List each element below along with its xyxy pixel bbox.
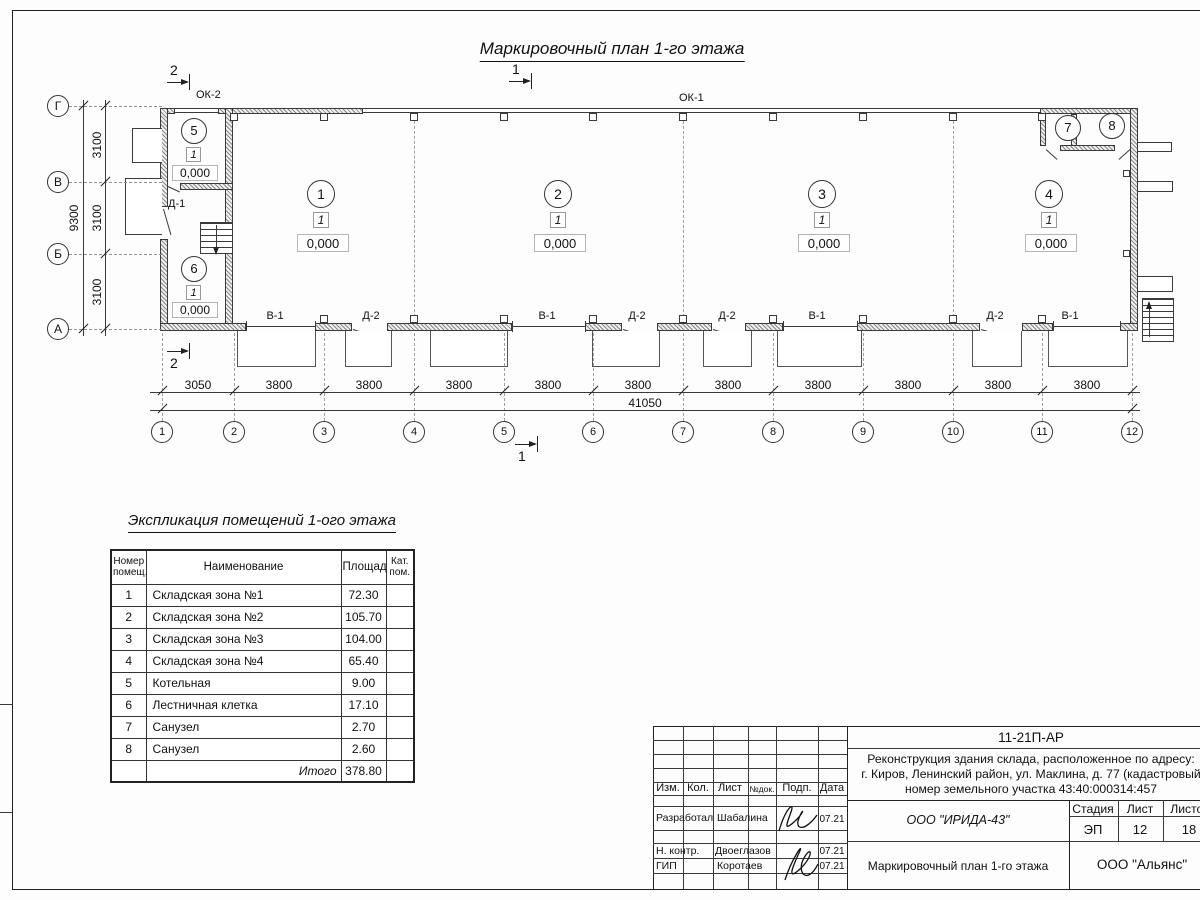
room-category-box: 1 [313, 212, 329, 228]
drawing-sheet: { "page": { "title": "Маркировочный план… [0, 0, 1200, 900]
room-number-bubble: 3 [808, 180, 836, 208]
canopy-right [1138, 181, 1173, 192]
zone-divider [414, 116, 415, 322]
titleblock-line [1069, 816, 1200, 817]
frame-mark [0, 812, 12, 813]
tb-header: Подп. [782, 783, 811, 794]
axis-extension [504, 333, 505, 421]
cell-num: 8 [111, 738, 146, 760]
pilaster [500, 315, 508, 323]
titleblock-line [713, 726, 714, 889]
opening-label: Д-2 [628, 311, 645, 322]
section-mark-bar [537, 436, 538, 452]
axis-extension [414, 333, 415, 421]
dim-label: 3100 [91, 132, 103, 159]
axis-bubble: Г [47, 95, 69, 117]
pilaster [1123, 250, 1130, 257]
room-elevation: 0,000 [798, 234, 850, 252]
dim-label: 3800 [805, 379, 832, 391]
signature [779, 836, 821, 884]
wall [160, 239, 168, 331]
pilaster [859, 113, 867, 121]
room-number-bubble: 2 [544, 180, 572, 208]
wall [180, 183, 233, 190]
door-leaf [1119, 149, 1131, 160]
axis-bubble: 11 [1031, 421, 1053, 443]
pilaster [230, 113, 238, 121]
porch [777, 331, 862, 367]
window-b1 [1053, 326, 1120, 327]
tb-company: ООО "Альянс" [1097, 858, 1187, 872]
titleblock-line [847, 841, 1200, 842]
axis-bubble: 4 [403, 421, 425, 443]
table-header-row: Номер помещ. Наименование Площадь Кат. п… [111, 550, 414, 584]
titleblock-line [653, 782, 847, 783]
table-row: 5Котельная9.00 [111, 672, 414, 694]
axis-bubble: 12 [1121, 421, 1143, 443]
zone-divider [683, 116, 684, 322]
dimension-line [150, 410, 1140, 411]
section-arrow-icon [523, 78, 531, 84]
axis-bubble: 9 [852, 421, 874, 443]
wall [745, 323, 783, 331]
tb-sheets-label: Листов [1170, 803, 1200, 815]
cell-area: 9.00 [341, 672, 386, 694]
dim-label: 3800 [446, 379, 473, 391]
table-total-row: Итого378.80 [111, 760, 414, 782]
tb-sheet-label: Лист [1127, 803, 1153, 815]
porch [703, 331, 752, 367]
dimension-line [105, 100, 106, 336]
dimension-line [83, 100, 84, 336]
window-ok1 [363, 108, 1040, 113]
pilaster [320, 113, 328, 121]
cell-cat [386, 716, 414, 738]
tb-org: ООО "ИРИДА-43" [907, 814, 1010, 827]
room-elevation: 0,000 [1025, 234, 1077, 252]
axis-bubble: 5 [493, 421, 515, 443]
room-category-box: 1 [550, 212, 566, 228]
dim-label: 3800 [266, 379, 293, 391]
section-arrow-icon [181, 348, 189, 354]
cell-cat [386, 584, 414, 606]
axis-bubble: 1 [151, 421, 173, 443]
titleblock-line [653, 795, 847, 796]
pilaster [1123, 170, 1130, 177]
porch-left [132, 128, 162, 163]
porch [972, 331, 1022, 367]
axis-extension [773, 333, 774, 421]
tb-role: Н. контр. [656, 846, 699, 857]
stair-arrow-up-icon [1146, 301, 1152, 309]
opening-label: Д-2 [362, 311, 379, 322]
cell-area: 104.00 [341, 628, 386, 650]
col-header-name: Наименование [146, 550, 341, 584]
tb-header: №док. [750, 785, 775, 794]
dim-total-label: 9300 [68, 205, 80, 232]
wall [1060, 145, 1115, 151]
tb-name: Двоеглазов [715, 846, 771, 857]
cell-name: Лестничная клетка [146, 694, 341, 716]
opening-label: В-1 [808, 311, 825, 322]
wall [1130, 108, 1138, 331]
cell-area: 65.40 [341, 650, 386, 672]
cell-num: 1 [111, 584, 146, 606]
cell-cat [386, 606, 414, 628]
tb-role: ГИП [656, 861, 677, 872]
door-leaf-d1 [163, 209, 171, 235]
axis-bubble: 2 [223, 421, 245, 443]
pilaster [679, 113, 687, 121]
cell-num: 5 [111, 672, 146, 694]
cell-name: Складская зона №1 [146, 584, 341, 606]
col-header-area: Площадь [341, 550, 386, 584]
cell-cat [386, 760, 414, 782]
room-elevation: 0,000 [534, 234, 586, 252]
col-header-num: Номер помещ. [111, 550, 146, 584]
pilaster [769, 315, 777, 323]
wall [1022, 323, 1053, 331]
tb-name: Коротаев [717, 861, 762, 872]
titleblock-border [653, 726, 654, 889]
door-leaf [1046, 149, 1058, 160]
tb-date: 07.21 [819, 847, 844, 857]
section-arrow-icon [529, 441, 537, 447]
pilaster [500, 113, 508, 121]
cell-name: Складская зона №4 [146, 650, 341, 672]
cell-num [111, 760, 146, 782]
room-number-bubble: 6 [181, 256, 207, 282]
tb-stage-value: ЭП [1084, 823, 1103, 836]
stair-arrow-down-icon [213, 247, 219, 255]
dim-label: 3800 [895, 379, 922, 391]
dim-label: 3800 [985, 379, 1012, 391]
cell-num: 2 [111, 606, 146, 628]
pilaster [410, 113, 418, 121]
wall [315, 323, 352, 331]
axis-extension [324, 333, 325, 421]
cell-num: 4 [111, 650, 146, 672]
frame-left [12, 10, 13, 889]
pilaster [589, 315, 597, 323]
cell-cat [386, 672, 414, 694]
cell-cat [386, 738, 414, 760]
axis-bubble: А [47, 318, 69, 340]
opening-label: Д-2 [718, 311, 735, 322]
axis-extension [683, 333, 684, 421]
canopy-right [1138, 142, 1172, 152]
wall [657, 323, 712, 331]
axis-extension [863, 333, 864, 421]
frame-bottom [12, 889, 1200, 890]
opening-label: В-1 [1061, 311, 1078, 322]
opening-label: В-1 [538, 311, 555, 322]
pilaster [589, 113, 597, 121]
dim-label: 3800 [625, 379, 652, 391]
frame-top [12, 10, 1200, 11]
page-title: Маркировочный план 1-го этажа [480, 39, 745, 62]
tb-project-line: Реконструкция здания склада, расположенн… [867, 753, 1194, 765]
axis-bubble: В [47, 171, 69, 193]
cell-name: Санузел [146, 738, 341, 760]
tb-date: 07.21 [819, 815, 844, 825]
porch [345, 331, 392, 367]
window-label-ok1: ОК-1 [679, 93, 704, 104]
tb-header: Дата [820, 783, 844, 794]
explication-table: Номер помещ. Наименование Площадь Кат. п… [110, 549, 415, 783]
dim-label: 3800 [535, 379, 562, 391]
table-row: 1Складская зона №172.30 [111, 584, 414, 606]
axis-bubble: Б [47, 243, 69, 265]
tb-date: 07.21 [819, 862, 844, 872]
axis-extension [1042, 333, 1043, 421]
room-number-bubble: 7 [1055, 115, 1081, 141]
section-mark-bar [189, 343, 190, 359]
titleblock-line [847, 748, 1200, 749]
tb-stage-label: Стадия [1072, 803, 1114, 815]
pilaster [949, 315, 957, 323]
axis-bubble: 10 [942, 421, 964, 443]
dim-total-label: 41050 [628, 397, 661, 409]
room-number-bubble: 4 [1035, 180, 1063, 208]
table-row: 3Складская зона №3104.00 [111, 628, 414, 650]
pilaster [949, 113, 957, 121]
window-end-tick [512, 321, 513, 332]
cell-name: Котельная [146, 672, 341, 694]
dim-label: 3100 [91, 205, 103, 232]
titleblock-line [847, 800, 1200, 801]
section-mark-label: 1 [512, 62, 520, 76]
room-category-box: 1 [1041, 212, 1057, 228]
door-leaf [168, 186, 180, 192]
room-number-bubble: 5 [181, 118, 207, 144]
room-elevation: 0,000 [172, 302, 218, 318]
wall [585, 323, 622, 331]
cell-area: 72.30 [341, 584, 386, 606]
section-mark-label: 2 [170, 356, 178, 370]
tb-sheet-value: 12 [1133, 823, 1147, 836]
cell-cat [386, 650, 414, 672]
titleblock-line [653, 740, 847, 741]
room-elevation: 0,000 [297, 234, 349, 252]
porch [430, 331, 508, 367]
opening-label: В-1 [266, 311, 283, 322]
explication-title: Экспликация помещений 1-ого этажа [128, 512, 396, 533]
door-label-d1: Д-1 [168, 199, 185, 210]
tb-sheet-title: Маркировочный план 1-го этажа [868, 860, 1049, 872]
pilaster [769, 113, 777, 121]
table-row: 4Складская зона №465.40 [111, 650, 414, 672]
axis-bubble: 6 [582, 421, 604, 443]
room-category-box: 1 [186, 285, 201, 300]
window-b1 [783, 326, 857, 327]
frame-mark [0, 704, 12, 705]
axis-extension [593, 333, 594, 421]
pilaster [320, 315, 328, 323]
tb-doc-number: 11-21П-АР [998, 731, 1064, 745]
axis-extension [234, 333, 235, 421]
wall [387, 323, 512, 331]
pilaster [1038, 113, 1046, 121]
wall [1040, 108, 1138, 114]
cell-num: 7 [111, 716, 146, 738]
titleblock-border [653, 726, 1200, 727]
room-category-box: 1 [814, 212, 830, 228]
dim-label: 3800 [715, 379, 742, 391]
room-category-box: 1 [186, 147, 201, 162]
cell-num: 6 [111, 694, 146, 716]
pilaster [410, 315, 418, 323]
tb-header: Лист [718, 783, 742, 794]
cell-area: 2.70 [341, 716, 386, 738]
cell-name: Санузел [146, 716, 341, 738]
titleblock-line [683, 726, 684, 889]
section-mark-bar [189, 74, 190, 90]
cell-name: Складская зона №2 [146, 606, 341, 628]
window-label-ok2: ОК-2 [196, 90, 221, 101]
stair-arrow-line [216, 225, 217, 249]
dim-label: 3050 [185, 379, 212, 391]
porch [592, 331, 660, 367]
col-header-cat: Кат. пом. [386, 550, 414, 584]
room-elevation: 0,000 [172, 165, 218, 181]
table-row: 2Складская зона №2105.70 [111, 606, 414, 628]
dimension-line [150, 392, 1140, 393]
wall [857, 323, 980, 331]
axis-extension [953, 333, 954, 421]
titleblock-line [847, 726, 848, 889]
dim-label: 3800 [1074, 379, 1101, 391]
tb-header: Изм. [656, 783, 680, 794]
titleblock-line [653, 754, 847, 755]
pilaster [679, 315, 687, 323]
total-label: Итого [146, 760, 341, 782]
opening-label: Д-2 [986, 311, 1003, 322]
titleblock-line [1163, 800, 1164, 841]
cell-area: 2.60 [341, 738, 386, 760]
porch [1048, 331, 1128, 367]
dim-label: 3100 [91, 279, 103, 306]
pilaster [1038, 315, 1046, 323]
tb-name: Шабалина [717, 813, 768, 824]
room-number-bubble: 1 [307, 180, 335, 208]
cell-area: 17.10 [341, 694, 386, 716]
wall [1120, 323, 1138, 331]
cell-area: 105.70 [341, 606, 386, 628]
cell-num: 3 [111, 628, 146, 650]
tb-header: Кол. [687, 783, 709, 794]
section-mark-bar [531, 73, 532, 89]
cell-cat [386, 628, 414, 650]
table-row: 7Санузел2.70 [111, 716, 414, 738]
zone-divider [953, 116, 954, 322]
axis-bubble: 8 [762, 421, 784, 443]
canopy-right [1138, 276, 1173, 292]
wall [225, 108, 233, 331]
wall [160, 323, 246, 331]
tb-role: Разработал [656, 813, 713, 824]
section-arrow-icon [181, 79, 189, 85]
axis-bubble: 3 [313, 421, 335, 443]
table-row: 6Лестничная клетка17.10 [111, 694, 414, 716]
porch-left [125, 178, 162, 235]
section-mark-label: 1 [518, 449, 526, 463]
cell-cat [386, 694, 414, 716]
room-number-bubble: 8 [1099, 113, 1125, 139]
titleblock-line [1118, 800, 1119, 841]
window-end-tick [585, 321, 586, 332]
window-b1 [246, 326, 315, 327]
porch [237, 331, 316, 367]
wall [218, 108, 363, 114]
dim-label: 3800 [356, 379, 383, 391]
tb-project-line: номер земельного участка 43:40:000314:45… [905, 783, 1157, 795]
window-ok2 [175, 108, 218, 113]
tb-project-line: г. Киров, Ленинский район, ул. Маклина, … [861, 768, 1200, 780]
axis-bubble: 7 [672, 421, 694, 443]
signature [775, 799, 821, 835]
section-mark-label: 2 [170, 63, 178, 77]
tb-sheets-value: 18 [1182, 823, 1196, 836]
pilaster [859, 315, 867, 323]
table-row: 8Санузел2.60 [111, 738, 414, 760]
cell-name: Складская зона №3 [146, 628, 341, 650]
total-value: 378.80 [341, 760, 386, 782]
titleblock-line [1069, 800, 1070, 889]
window-b1 [512, 326, 585, 327]
titleblock-line [653, 768, 847, 769]
